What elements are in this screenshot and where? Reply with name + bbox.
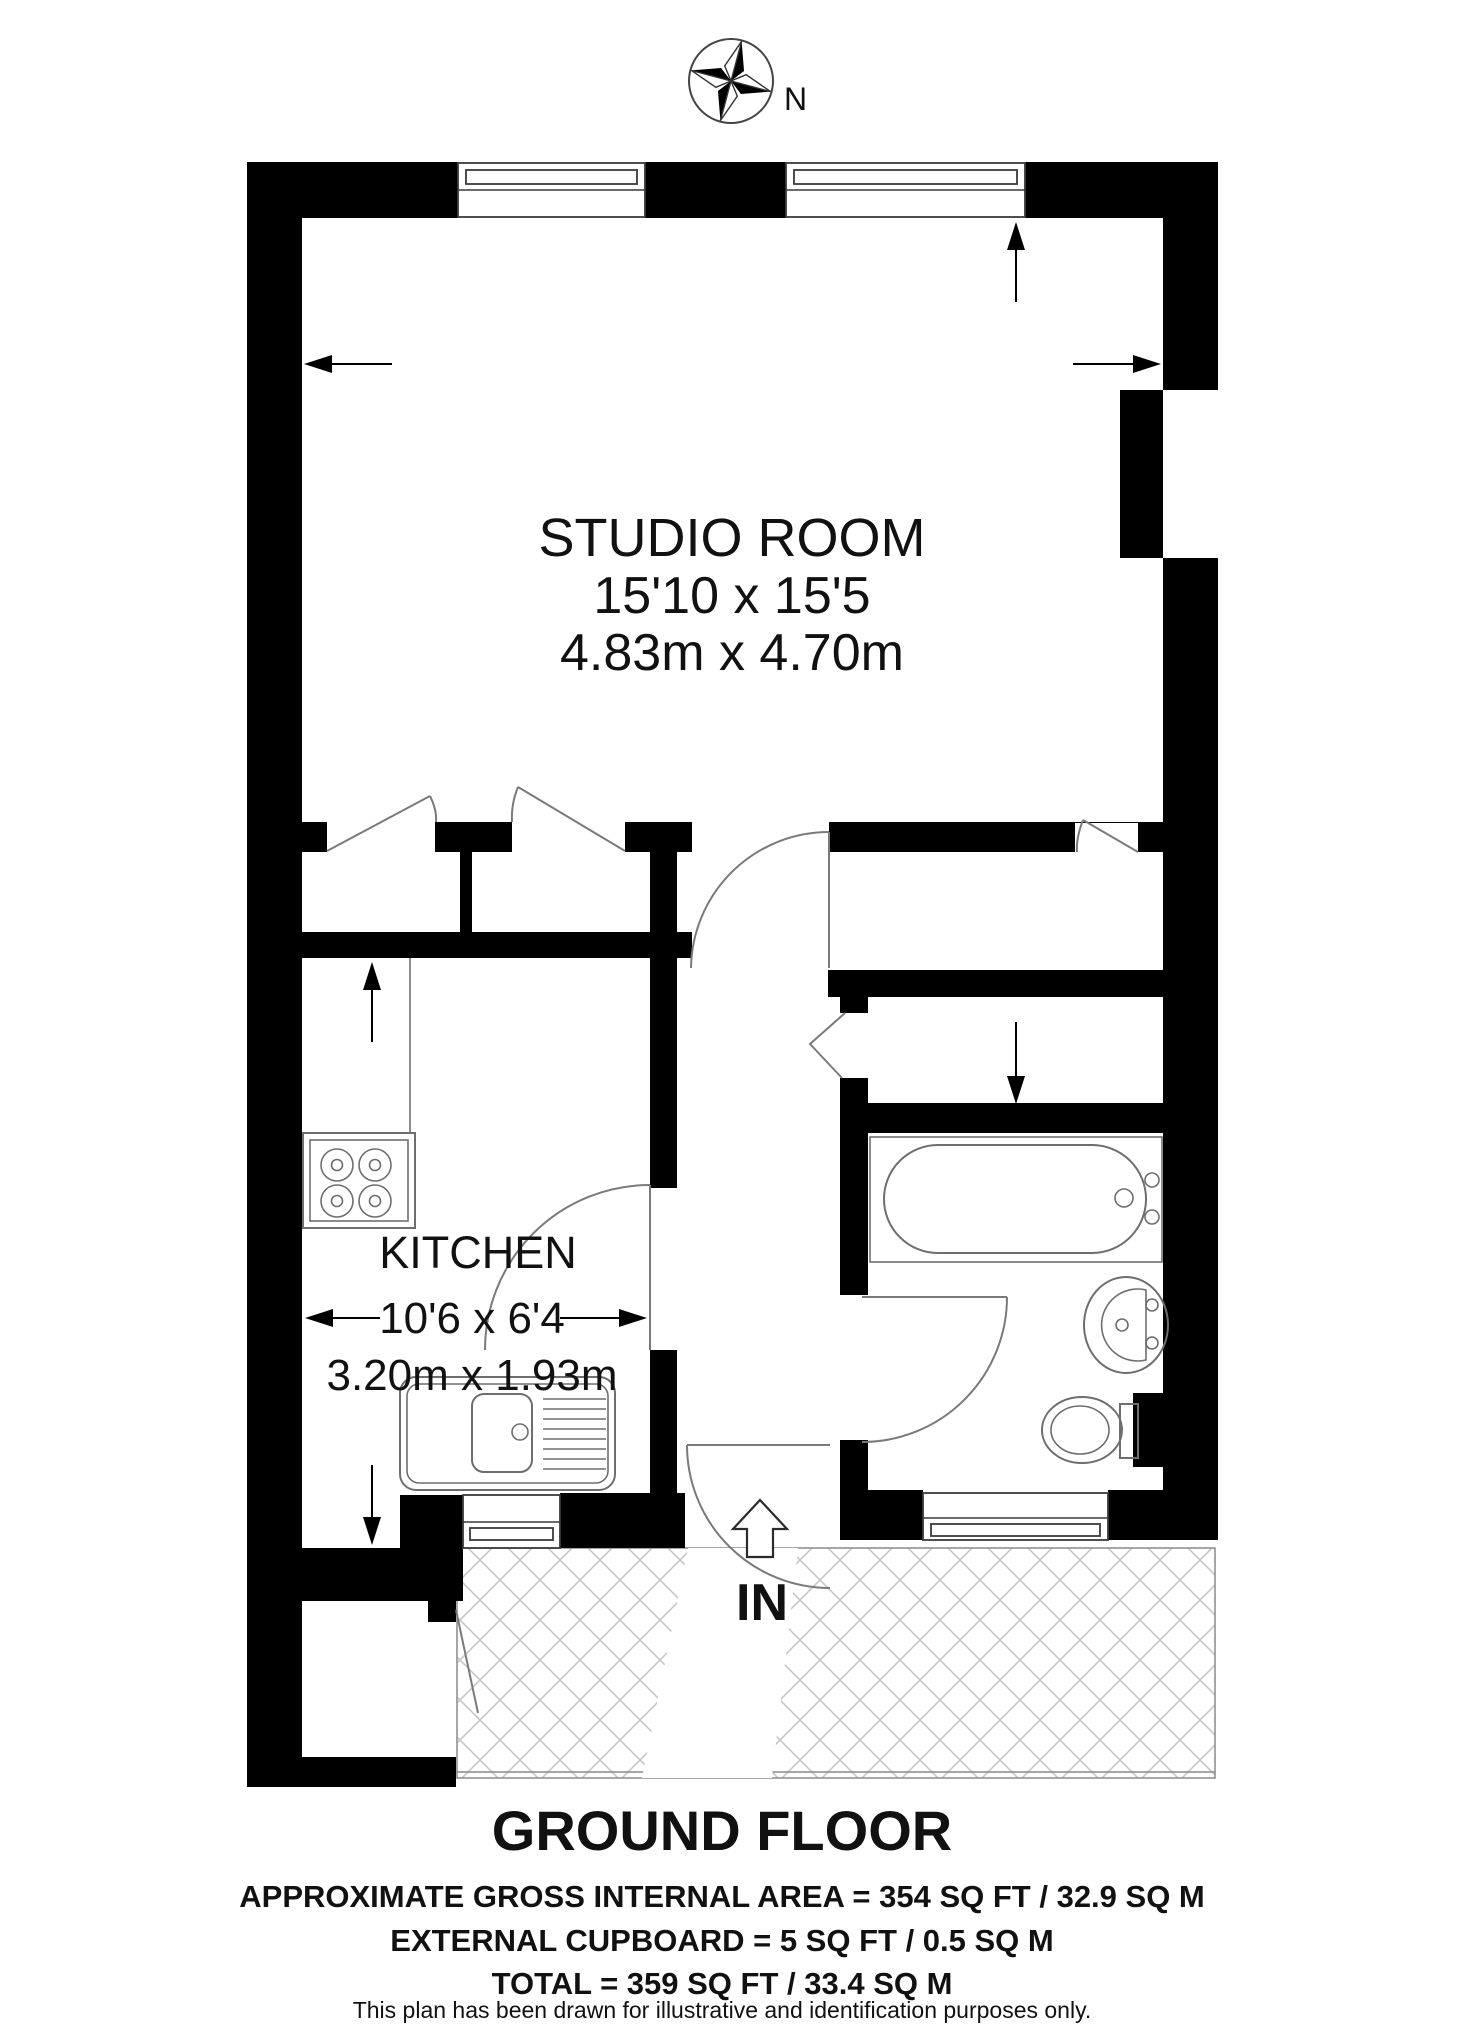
walls bbox=[247, 162, 1218, 1787]
studio-width-arrow-left bbox=[304, 355, 392, 373]
porch-hatched-area bbox=[457, 1548, 1215, 1778]
kitchen-width-arrow-left bbox=[305, 1309, 380, 1327]
studio-depth-arrow-bottom bbox=[1007, 1022, 1025, 1104]
studio-depth-arrow-top bbox=[1007, 222, 1025, 302]
studio-room-dim-imperial: 15'10 x 15'5 bbox=[593, 567, 870, 625]
disclaimer-text: This plan has been drawn for illustrativ… bbox=[353, 1997, 1092, 2023]
area-line-1: APPROXIMATE GROSS INTERNAL AREA = 354 SQ… bbox=[239, 1879, 1205, 1914]
floorplan-page: N STUDIO ROOM 15'10 x 15'5 4.83m x 4.70m… bbox=[0, 0, 1462, 2025]
area-line-3: TOTAL = 359 SQ FT / 33.4 SQ M bbox=[492, 1966, 953, 2001]
kitchen-depth-arrow-bottom bbox=[363, 1465, 381, 1545]
entry-in-label: IN bbox=[736, 1574, 788, 1632]
bathroom-window bbox=[923, 1493, 1108, 1540]
airing-cupboard-door bbox=[810, 1013, 845, 1078]
compass-icon: N bbox=[681, 31, 807, 131]
area-line-2: EXTERNAL CUPBOARD = 5 SQ FT / 0.5 SQ M bbox=[390, 1923, 1053, 1958]
bathroom-door bbox=[862, 1297, 1007, 1442]
fixtures bbox=[303, 958, 1168, 1490]
kitchen-width-arrow-right bbox=[560, 1309, 647, 1327]
dimension-arrows bbox=[304, 222, 1161, 1545]
closet-door-right bbox=[512, 787, 625, 851]
wall-recess-pier bbox=[1120, 390, 1163, 558]
basin-icon bbox=[1084, 1277, 1168, 1373]
hob-icon bbox=[303, 1133, 415, 1228]
studio-room-name: STUDIO ROOM bbox=[539, 508, 926, 568]
kitchen-dim-imperial: 10'6 x 6'4 bbox=[379, 1294, 565, 1343]
floorplan-drawing: N STUDIO ROOM 15'10 x 15'5 4.83m x 4.70m… bbox=[0, 0, 1462, 2025]
kitchen-dim-metric: 3.20m x 1.93m bbox=[326, 1351, 617, 1400]
bathtub-icon bbox=[870, 1137, 1162, 1262]
compass-north-label: N bbox=[784, 81, 807, 117]
floor-title: GROUND FLOOR bbox=[492, 1799, 952, 1862]
kitchen-depth-arrow-top bbox=[363, 962, 381, 1042]
studio-door bbox=[691, 832, 829, 968]
studio-window-left bbox=[458, 163, 645, 217]
labels: STUDIO ROOM 15'10 x 15'5 4.83m x 4.70m K… bbox=[239, 508, 1205, 2023]
toilet-icon bbox=[1042, 1397, 1138, 1463]
studio-window-right bbox=[786, 163, 1025, 217]
closet-door-left bbox=[327, 796, 436, 851]
studio-room-dim-metric: 4.83m x 4.70m bbox=[560, 624, 904, 682]
studio-width-arrow-right bbox=[1073, 355, 1161, 373]
kitchen-window bbox=[463, 1495, 560, 1548]
kitchen-name: KITCHEN bbox=[379, 1227, 577, 1278]
closet-divider-wall bbox=[460, 852, 472, 932]
